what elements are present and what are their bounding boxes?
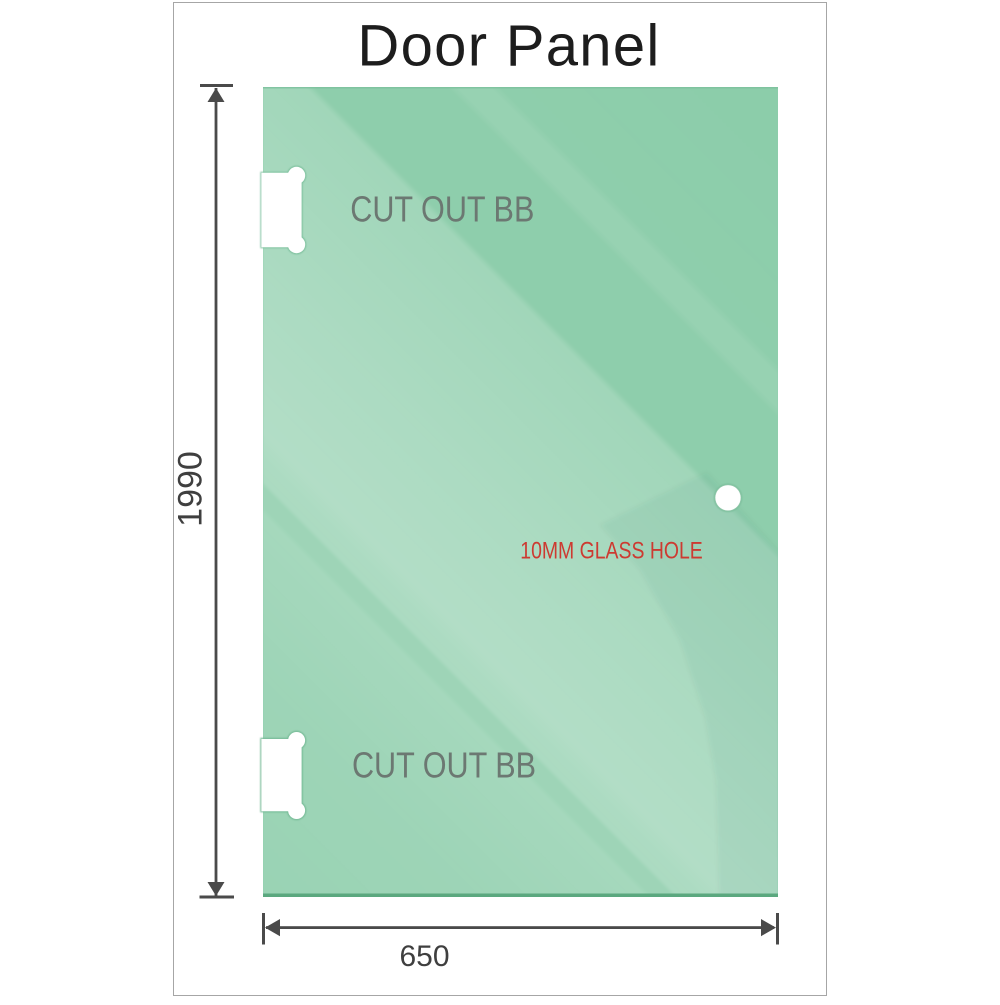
svg-text:10MM GLASS HOLE: 10MM GLASS HOLE: [520, 537, 702, 564]
svg-text:1990: 1990: [171, 451, 209, 527]
svg-text:Door Panel: Door Panel: [357, 14, 660, 79]
svg-text:CUT OUT BB: CUT OUT BB: [352, 746, 536, 786]
svg-text:CUT OUT BB: CUT OUT BB: [350, 190, 534, 230]
svg-text:650: 650: [399, 940, 449, 973]
